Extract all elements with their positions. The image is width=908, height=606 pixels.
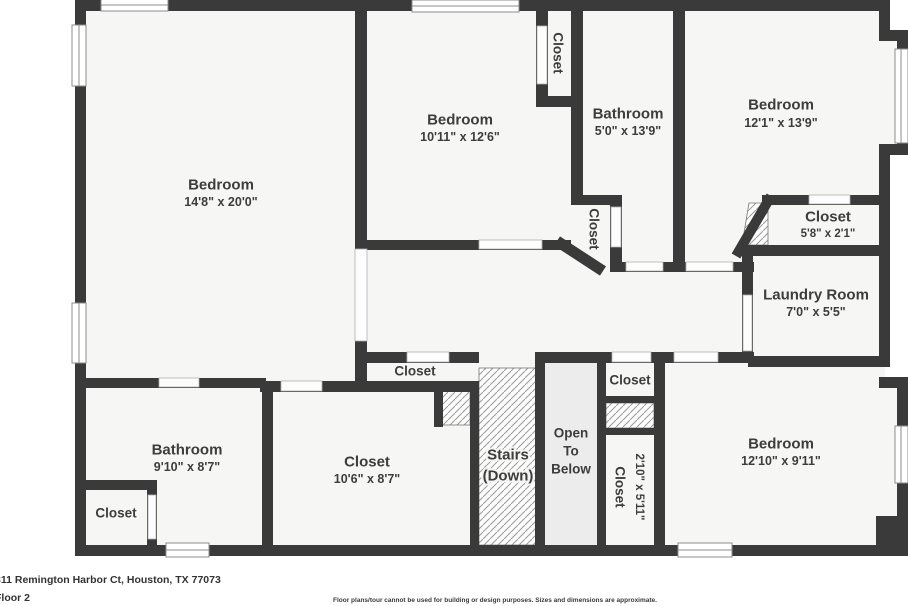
floor-label: Floor 2 (0, 592, 30, 604)
window (72, 303, 86, 363)
address-text: 311 Remington Harbor Ct, Houston, TX 770… (0, 574, 221, 586)
door-opening (611, 207, 621, 247)
room-label-to: To (563, 444, 579, 459)
room-label-stairs-down: (Down) (483, 468, 534, 485)
room-dims-closet-bottom-large: 10'6" x 8'7" (334, 472, 401, 486)
disclaimer-text: Floor plans/tour cannot be used for buil… (333, 597, 657, 604)
room-dims-bathroom-bottom: 9'10" x 8'7" (154, 460, 221, 474)
room-label-below: Below (551, 462, 591, 477)
room-label-laundry: Laundry Room (763, 287, 869, 304)
door-opening (809, 195, 850, 204)
door-opening (281, 381, 322, 391)
room-label-bedroom-bottom-right: Bedroom (748, 436, 814, 453)
door-opening (743, 295, 752, 351)
door-opening (159, 378, 199, 387)
room-label-closet-hall-west: Closet (394, 364, 436, 379)
room-label-open: Open (554, 426, 589, 441)
room-label-bedroom-top-left: Bedroom (188, 177, 254, 194)
window (678, 543, 732, 557)
room-label-closet-hall-east: Closet (609, 373, 651, 388)
room-label-closet-bottom-large: Closet (344, 454, 390, 471)
door-opening (626, 262, 663, 271)
room-dims-bathroom-top: 5'0" x 13'9" (595, 124, 662, 138)
floor-plan: Bedroom 14'8" x 20'0" Bedroom 10'11" x 1… (0, 0, 908, 570)
door-opening (407, 352, 449, 362)
closet-hatch-strip (606, 403, 654, 428)
room-label-stairs: Stairs (487, 447, 529, 464)
door-opening (479, 240, 542, 249)
chase-hatch (442, 387, 470, 425)
room-label-closet-top: Closet (551, 32, 566, 74)
door-opening (148, 495, 156, 539)
room-dims-laundry: 7'0" x 5'5" (786, 305, 846, 319)
room-dims-bedroom-top-right: 12'1" x 13'9" (744, 116, 817, 130)
room-label-bathroom-bottom: Bathroom (152, 442, 223, 459)
door-opening (537, 26, 547, 84)
door-opening (612, 352, 651, 362)
window (101, 0, 168, 11)
window (895, 49, 908, 143)
room-label-bathroom-top: Bathroom (593, 106, 664, 123)
room-label-bedroom-top-right: Bedroom (748, 97, 814, 114)
window (72, 25, 86, 86)
room-label-closet-mid: Closet (587, 208, 602, 250)
room-dims-bedroom-bottom-right: 12'10" x 9'11" (741, 454, 821, 468)
door-opening (686, 262, 733, 271)
window (895, 426, 908, 483)
room-label-closet-by-bedroom: Closet (805, 209, 851, 226)
room-dims-bedroom-top-middle: 10'11" x 12'6" (420, 130, 500, 144)
door-opening (674, 352, 718, 362)
room-label-closet-narrow: Closet (613, 466, 628, 508)
floor-plan-page: Bedroom 14'8" x 20'0" Bedroom 10'11" x 1… (0, 0, 908, 606)
door-opening (355, 249, 367, 341)
room-dims-bedroom-top-left: 14'8" x 20'0" (184, 195, 257, 209)
window (412, 0, 519, 12)
room-label-bedroom-top-middle: Bedroom (427, 112, 493, 129)
window (166, 543, 209, 557)
room-dims-closet-by-bedroom: 5'8" x 2'1" (801, 228, 856, 240)
room-dims-closet-narrow: 2'10" x 5'11" (633, 454, 645, 521)
room-label-closet-bottom-small: Closet (95, 506, 137, 521)
